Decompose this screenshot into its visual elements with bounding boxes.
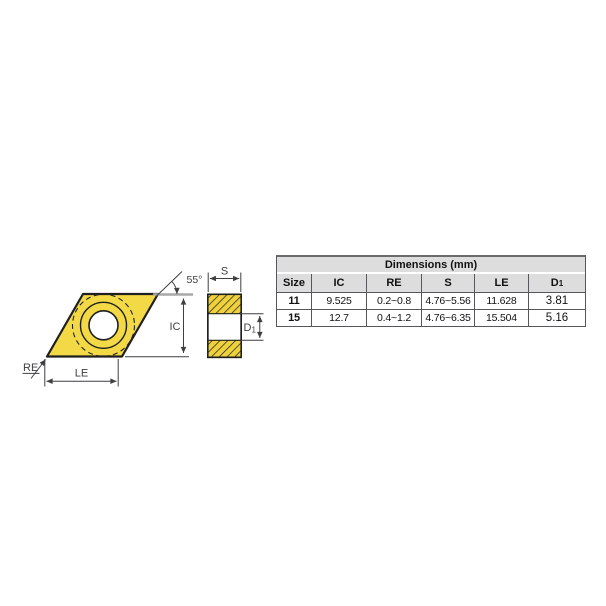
insert-side-view bbox=[208, 294, 241, 357]
angle-extension-line bbox=[156, 272, 182, 297]
cell-le: 15.504 bbox=[474, 310, 528, 326]
s-label: S bbox=[221, 266, 228, 278]
table-row: 11 9.525 0.2~0.8 4.76~5.56 11.628 3.81 bbox=[277, 292, 585, 309]
d1-label: D1 bbox=[244, 322, 257, 335]
column-header-ic: IC bbox=[311, 274, 366, 292]
cell-s: 4.76~5.56 bbox=[421, 293, 474, 309]
center-hole bbox=[89, 311, 118, 340]
column-header-re: RE bbox=[366, 274, 421, 292]
cell-size: 15 bbox=[277, 310, 311, 326]
le-label: LE bbox=[75, 368, 88, 380]
dimensions-table: Dimensions (mm) Size IC RE S LE D1 11 9.… bbox=[276, 255, 586, 327]
d1-header-subscript: 1 bbox=[559, 279, 563, 288]
ic-label: IC bbox=[170, 321, 181, 333]
cell-size: 11 bbox=[277, 293, 311, 309]
s-dimension: S bbox=[208, 266, 241, 293]
side-view-top-hatch bbox=[208, 294, 241, 313]
cell-re: 0.2~0.8 bbox=[366, 293, 421, 309]
table-row: 15 12.7 0.4~1.2 4.76~6.35 15.504 5.16 bbox=[277, 309, 585, 326]
cell-le: 11.628 bbox=[474, 293, 528, 309]
column-header-s: S bbox=[421, 274, 474, 292]
table-title: Dimensions (mm) bbox=[277, 257, 585, 272]
angle-arc bbox=[172, 281, 177, 294]
column-header-size: Size bbox=[277, 274, 311, 292]
side-view-bottom-hatch bbox=[208, 340, 241, 357]
insert-front-view bbox=[47, 294, 158, 357]
le-dimension: LE bbox=[45, 359, 118, 387]
cell-d1: 5.16 bbox=[528, 310, 585, 326]
table-header-row: Size IC RE S LE D1 bbox=[277, 274, 585, 292]
cell-d1: 3.81 bbox=[528, 293, 585, 309]
angle-label: 55° bbox=[187, 274, 203, 286]
column-header-le: LE bbox=[474, 274, 528, 292]
d1-dimension: D1 bbox=[240, 314, 264, 341]
re-callout: RE bbox=[23, 360, 46, 379]
d1-header-base: D bbox=[551, 277, 559, 289]
cell-ic: 9.525 bbox=[311, 293, 366, 309]
cell-ic: 12.7 bbox=[311, 310, 366, 326]
corner-angle-annotation: 55° bbox=[153, 272, 202, 297]
cell-re: 0.4~1.2 bbox=[366, 310, 421, 326]
cell-s: 4.76~6.35 bbox=[421, 310, 474, 326]
column-header-d1: D1 bbox=[528, 274, 585, 292]
